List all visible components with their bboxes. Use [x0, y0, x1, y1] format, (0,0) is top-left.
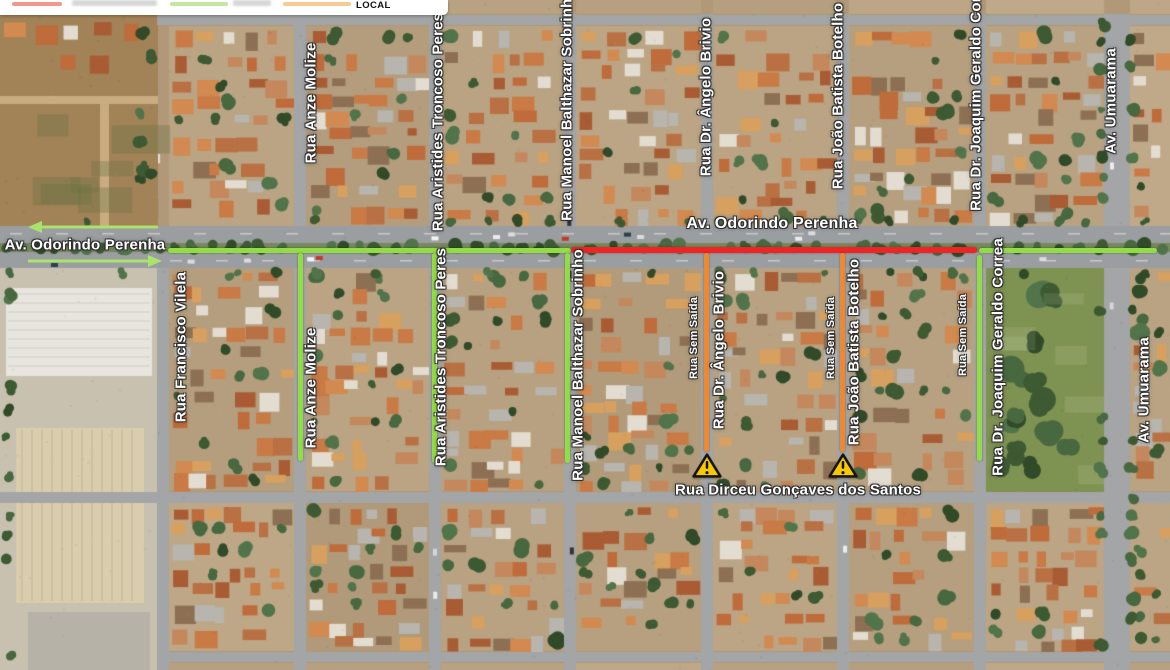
street-label-rua-francisco-vilela: Rua Francisco Vilela — [173, 272, 190, 422]
street-label-rua-dr-joaquim-geraldo-correa-south: Rua Dr. Joaquim Geraldo Correa — [990, 238, 1007, 476]
street-label-rua-dr-angelo-brivio-south: Rua Dr. Ângelo Brivio — [711, 271, 728, 429]
warning-triangle-icon — [692, 452, 722, 479]
route-local-rua-joao-batista-botelho — [840, 253, 845, 452]
route-local-rua-dr-angelo-brivio — [704, 253, 709, 452]
legend-label-closed-cropped — [72, 0, 157, 6]
route-open-av-odorindo-west — [168, 248, 571, 253]
street-label-rua-sem-saida-3: Rua Sem Saída — [957, 294, 969, 376]
street-label-rua-sem-saida-2: Rua Sem Saída — [825, 297, 837, 379]
street-label-av-odorindo-perenha-west: Av. Odorindo Perenha — [5, 237, 166, 254]
route-open-rua-dr-joaquim-geraldo-correa — [977, 255, 982, 461]
legend-swatch-closed — [12, 2, 62, 6]
warning-exclamation-dot — [841, 471, 844, 474]
legend-swatch-open — [170, 2, 228, 6]
street-label-av-umuarama-north: Av. Umuarama — [1103, 48, 1120, 154]
street-label-rua-dr-joaquim-geraldo-correa-north: Rua Dr. Joaquim Geraldo Correa — [968, 0, 985, 211]
street-label-rua-aristides-troncoso-peres-north: Rua Aristides Troncoso Peres — [430, 13, 447, 231]
warning-triangle-icon — [828, 452, 858, 479]
arrow-west-head-icon — [28, 221, 42, 233]
street-label-rua-joao-batista-botelho-south: Rua João Batista Botelho — [846, 259, 863, 446]
street-label-rua-aristides-troncoso-peres-south: Rua Aristides Troncoso Peres — [433, 248, 450, 466]
street-label-rua-dirceu-goncaves-dos-santos: Rua Dirceu Gonçaves dos Santos — [675, 482, 921, 499]
traffic-map: Rua Anze MolizeRua Aristides Troncoso Pe… — [0, 0, 1170, 670]
legend-label-open-cropped — [233, 0, 271, 6]
street-label-rua-dr-angelo-brivio-north: Rua Dr. Ângelo Brivio — [698, 18, 715, 176]
street-label-rua-manoel-balthazar-sobrinho-south: Rua Manoel Balthazar Sobrinho — [570, 249, 587, 481]
route-closed-av-odorindo — [571, 247, 977, 253]
map-legend: LOCAL — [0, 0, 448, 15]
street-label-rua-anze-molize-north: Rua Anze Molize — [303, 43, 320, 164]
legend-swatch-local — [283, 2, 351, 6]
street-label-rua-joao-batista-botelho-north: Rua João Batista Botelho — [830, 3, 847, 190]
warning-exclamation-dot — [705, 471, 708, 474]
arrow-east-head-icon — [148, 255, 162, 267]
annotations-overlay: Rua Anze MolizeRua Aristides Troncoso Pe… — [0, 0, 1170, 670]
warning-exclamation-bar — [706, 461, 709, 469]
warning-exclamation-bar — [842, 461, 845, 469]
street-label-rua-sem-saida-1: Rua Sem Saída — [688, 297, 700, 379]
street-label-av-umuarama-south: Av. Umuarama — [1136, 337, 1153, 443]
legend-label-local: LOCAL — [356, 0, 391, 11]
street-label-rua-anze-molize-south: Rua Anze Molize — [303, 328, 320, 449]
street-label-av-odorindo-perenha-center: Av. Odorindo Perenha — [686, 215, 857, 233]
street-label-rua-manoel-balthazar-sobrinho-north: Rua Manoel Balthazar Sobrinho — [559, 0, 576, 221]
